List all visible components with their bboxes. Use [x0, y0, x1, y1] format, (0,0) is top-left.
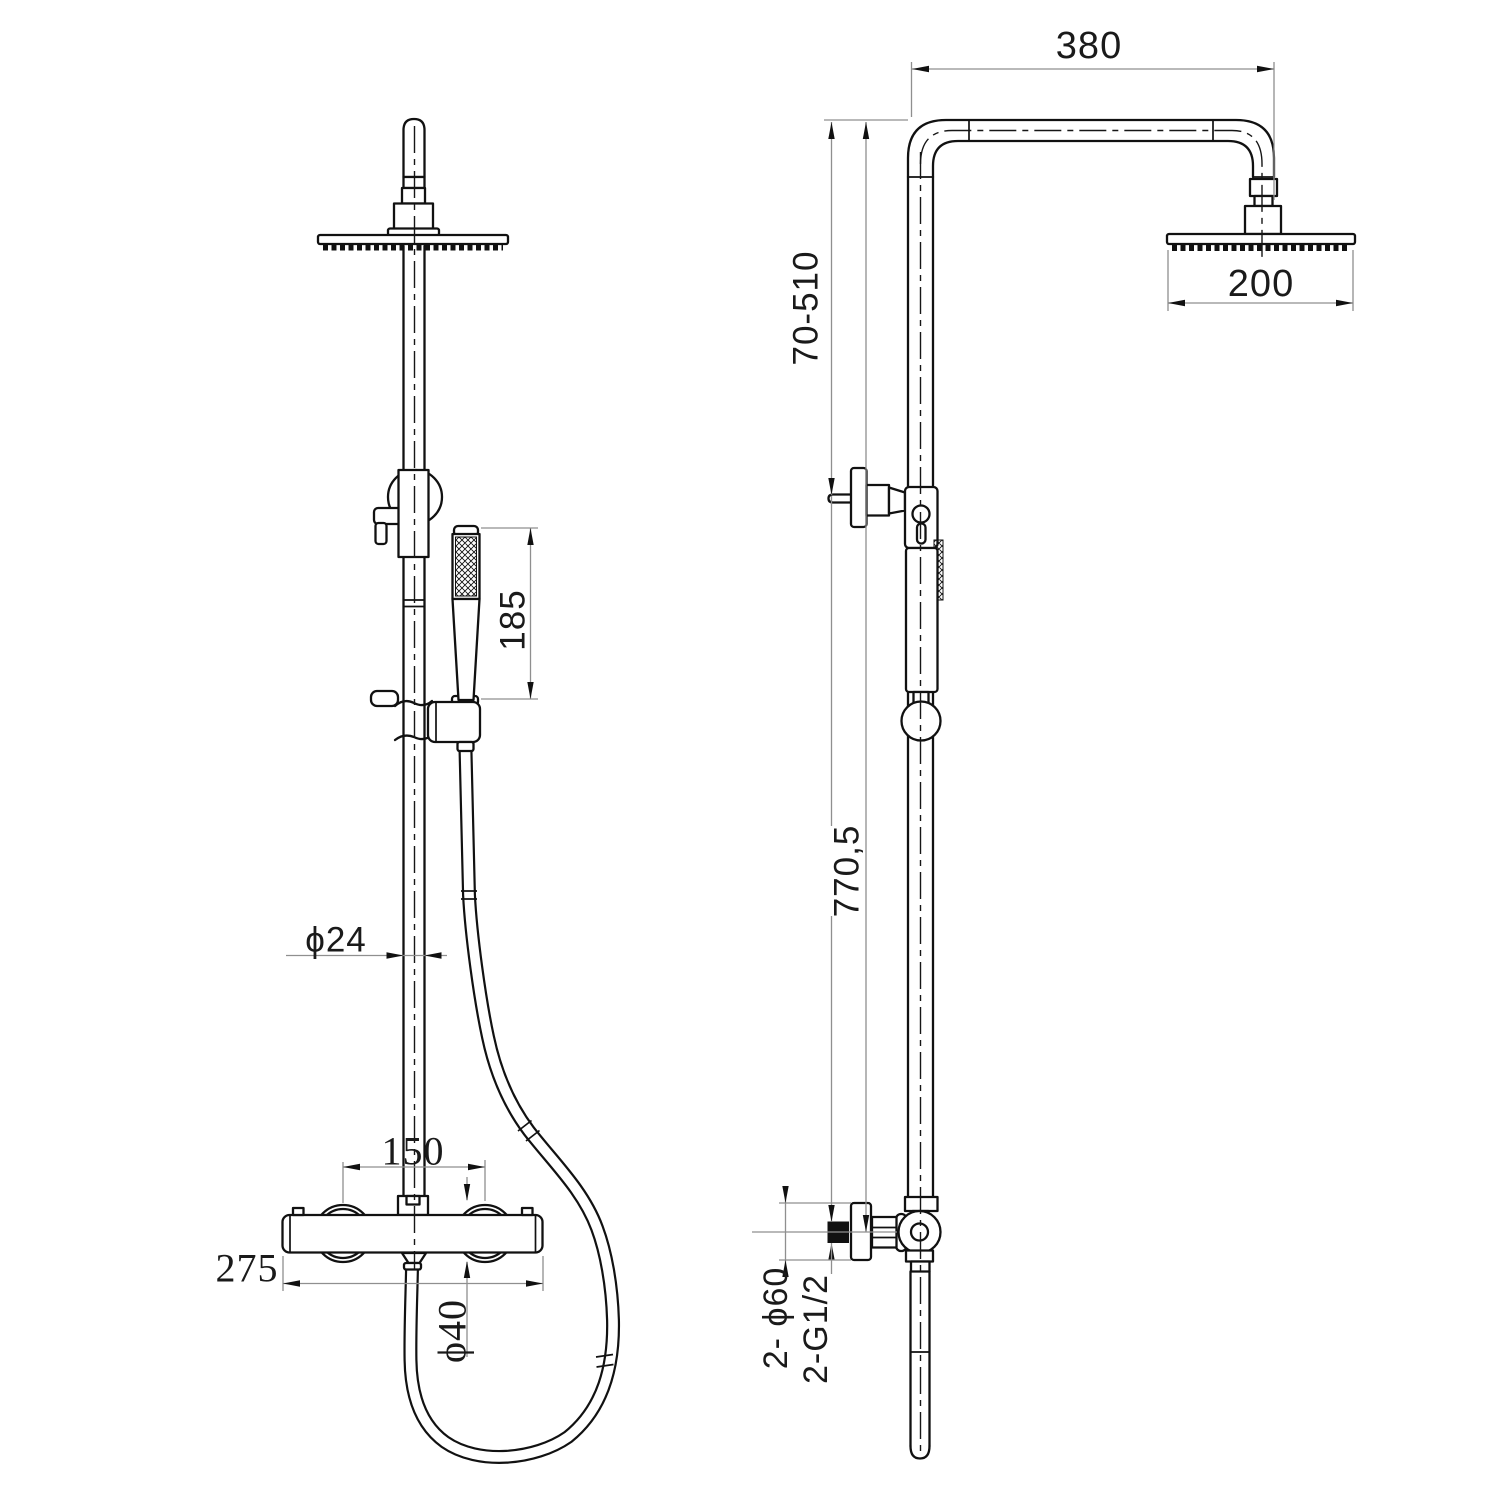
drawing-page: 185 ϕ24 150 275 ϕ40 [0, 0, 1500, 1500]
bracket-sleeve [399, 470, 429, 557]
wall-bracket-front [374, 470, 442, 557]
centerlines-side [921, 131, 1263, 1453]
rain-shower-head-side [1167, 179, 1355, 248]
dim-column-height-label: 770,5 [828, 825, 867, 918]
spray-face-hatch [456, 537, 477, 596]
valve-body-side [899, 1211, 941, 1253]
head-plate-front [318, 235, 508, 244]
thermostatic-mixer-front [283, 1196, 543, 1270]
wall-flange-upper [851, 468, 867, 527]
dim-thread-label: 2-G1/2 [797, 1274, 835, 1384]
side-view: 380 200 70-510 770,5 [752, 25, 1355, 1459]
dim-hand-shower-length-label: 185 [494, 589, 533, 650]
front-view: 185 ϕ24 150 275 ϕ40 [216, 119, 614, 1457]
hand-shower-side [902, 540, 944, 741]
shower-arm-side [908, 120, 1274, 177]
dim-handle-diameter-label: ϕ40 [430, 1299, 475, 1363]
dim-flange-diameter-label: 2- ϕ60 [757, 1267, 795, 1370]
rain-shower-head-front [318, 119, 508, 248]
mixer-body [283, 1215, 543, 1253]
dim-arm-reach-label: 380 [1056, 25, 1122, 67]
dim-mixer-width-label: 275 [216, 1246, 279, 1291]
hand-shower-front [453, 526, 480, 700]
dim-handle-centers-label: 150 [382, 1129, 445, 1174]
dim-riser-diameter-label: ϕ24 [305, 921, 367, 960]
dim-height-range-label: 70-510 [787, 251, 826, 366]
hose-connector-front [458, 742, 474, 751]
head-plate-side [1167, 234, 1355, 244]
shower-column-technical-drawing: 185 ϕ24 150 275 ϕ40 [0, 0, 1500, 1500]
dim-head-diameter-label: 200 [1228, 263, 1294, 305]
